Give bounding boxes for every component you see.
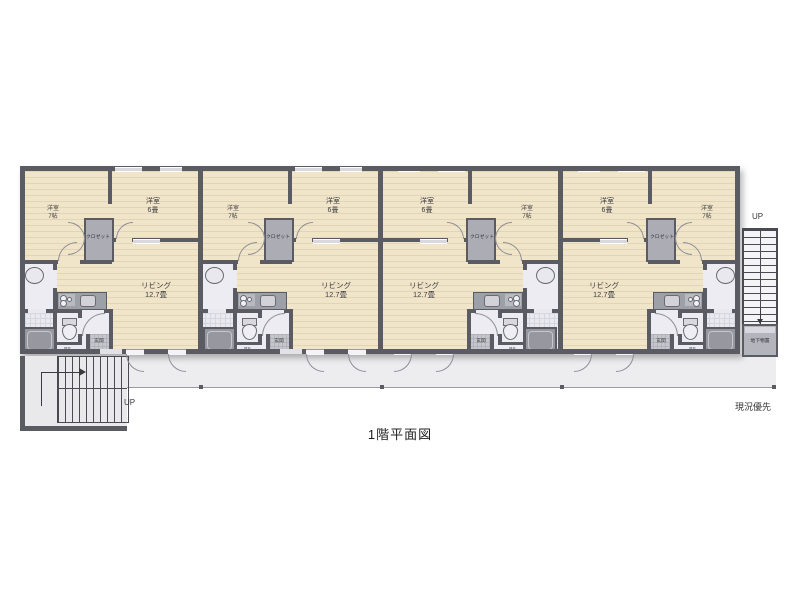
- window-top: [398, 167, 420, 172]
- wash-basin: [716, 267, 735, 284]
- stair-direction-line: [41, 372, 81, 373]
- bedroom-large-label: 洋室 6畳: [582, 198, 632, 216]
- ps-text: PS: [689, 347, 695, 352]
- kitchen-counter: [237, 292, 287, 310]
- ps-text: PS: [509, 347, 515, 352]
- apartment-unit-4: 洋室 7帖 洋室 6畳 クロゼット リビング 12.7畳 玄関 PS: [560, 166, 740, 354]
- window-top: [618, 167, 645, 172]
- room-size: 6畳: [148, 207, 159, 214]
- right-arrow-icon: [79, 368, 86, 376]
- unit-geometry: 洋室 7帖 洋室 6畳 クロゼット リビング 12.7畳 玄関 PS: [380, 166, 560, 354]
- living-label: リビング 12.7畳: [564, 281, 644, 300]
- wash-basin: [205, 267, 224, 284]
- wall-hall-living: [647, 309, 651, 354]
- bathtub-inner: [207, 331, 232, 350]
- room-size: 6畳: [422, 207, 433, 214]
- room-size: 7帖: [228, 214, 237, 220]
- room-name: リビング: [409, 281, 439, 290]
- wall-between-bedrooms: [648, 166, 652, 204]
- basement-storage-label: 地下物置: [747, 339, 773, 345]
- party-wall: [198, 166, 203, 354]
- window-top: [340, 167, 362, 172]
- window-bedroom-large: [600, 239, 627, 244]
- basement-storage: 地下物置: [742, 324, 778, 357]
- burner-icon: [693, 300, 700, 307]
- wash-basin: [536, 267, 555, 284]
- kitchen-counter: [473, 292, 523, 310]
- walkway-post: [560, 385, 564, 389]
- room-size: 6畳: [328, 207, 339, 214]
- bathtub: [23, 327, 56, 354]
- burner-icon: [508, 297, 513, 302]
- stove: [59, 294, 75, 306]
- burner-icon: [67, 297, 72, 302]
- closet-text: クロゼット: [86, 235, 110, 240]
- entrance-opening: [458, 349, 480, 354]
- room-size: 7帖: [522, 214, 531, 220]
- closet-text: クロゼット: [650, 235, 674, 240]
- closet-label: クロゼット: [469, 235, 495, 241]
- stair-treads: [57, 356, 129, 423]
- unit-geometry: 洋室 7帖 洋室 6畳 クロゼット リビング 12.7畳 玄関 PS: [200, 166, 380, 354]
- stove: [685, 294, 701, 306]
- door-opening-toilet: [498, 318, 502, 334]
- bathtub: [524, 327, 557, 354]
- room-name: 洋室: [146, 198, 160, 205]
- entrance-label: 玄関: [473, 339, 489, 345]
- burner-icon: [513, 300, 520, 307]
- entrance-opening: [100, 349, 122, 354]
- storage-hatch: [745, 327, 775, 333]
- bathtub-inner: [27, 331, 52, 350]
- apartment-unit-1: 洋室 7帖 洋室 6畳 クロゼット リビング 12.7畳 玄関 PS: [20, 166, 200, 354]
- bathtub-inner: [528, 331, 553, 350]
- room-name: リビング: [321, 281, 351, 290]
- door-opening-washroom: [53, 270, 57, 288]
- room-name: 洋室: [227, 206, 239, 212]
- ps-label: PS: [59, 347, 76, 353]
- window-top: [115, 167, 142, 172]
- bedroom-large-label: 洋室 6畳: [402, 198, 452, 216]
- up-label-left: UP: [124, 398, 135, 407]
- up-label-right: UP: [752, 212, 763, 221]
- living-label: リビング 12.7畳: [116, 281, 196, 300]
- room-name: 洋室: [701, 206, 713, 212]
- floorplan-canvas: 洋室 7帖 洋室 6畳 クロゼット リビング 12.7畳 玄関 PS: [0, 0, 800, 613]
- door-opening-washroom: [523, 270, 527, 288]
- unit-geometry: 洋室 7帖 洋室 6畳 クロゼット リビング 12.7畳 玄関 PS: [20, 166, 200, 354]
- burner-icon: [247, 297, 252, 302]
- room-name: 洋室: [521, 206, 533, 212]
- entrance-opening: [280, 349, 302, 354]
- door-opening-toilet: [258, 318, 262, 334]
- party-wall: [558, 166, 563, 354]
- wall-hall-living: [467, 309, 471, 354]
- wall-hall-living: [289, 309, 293, 354]
- room-size: 7帖: [48, 214, 57, 220]
- entrance-text: 玄関: [476, 339, 486, 344]
- bathtub: [704, 327, 737, 354]
- ps-text: PS: [244, 347, 250, 352]
- door-opening-toilet: [678, 318, 682, 334]
- window-top: [295, 167, 322, 172]
- window-bedroom-large: [420, 239, 447, 244]
- bedroom-large-label: 洋室 6畳: [128, 198, 178, 216]
- window-bedroom-large: [313, 239, 340, 244]
- living-label: リビング 12.7畳: [384, 281, 464, 300]
- walkway-post: [772, 385, 776, 389]
- bedroom-small-label: 洋室 7帖: [210, 206, 256, 221]
- door-opening-toilet: [78, 318, 82, 334]
- stove: [505, 294, 521, 306]
- door-opening-bathroom: [534, 309, 552, 313]
- wall-hall-living: [109, 309, 113, 354]
- walkway-post: [199, 385, 203, 389]
- closet-text: クロゼット: [470, 235, 494, 240]
- window-top: [160, 167, 182, 172]
- room-size: 12.7畳: [325, 290, 347, 299]
- ps-label: PS: [239, 347, 256, 353]
- room-name: リビング: [589, 281, 619, 290]
- ps-text: PS: [64, 347, 70, 352]
- window-top: [438, 167, 465, 172]
- bedroom-small-label: 洋室 7帖: [504, 206, 550, 221]
- bedroom-large-label: 洋室 6畳: [308, 198, 358, 216]
- wall-entrance-left: [266, 334, 270, 354]
- building-outline: 洋室 7帖 洋室 6畳 クロゼット リビング 12.7畳 玄関 PS: [20, 166, 740, 354]
- burner-icon: [688, 297, 693, 302]
- exterior-staircase-right: [742, 228, 778, 326]
- entrance-text: 玄関: [656, 339, 666, 344]
- party-wall: [378, 166, 383, 354]
- kitchen-sink: [664, 295, 680, 307]
- bedroom-small-label: 洋室 7帖: [30, 206, 76, 221]
- unit-geometry: 洋室 7帖 洋室 6畳 クロゼット リビング 12.7畳 玄関 PS: [560, 166, 740, 354]
- door-opening-washroom: [703, 270, 707, 288]
- apartment-unit-3: 洋室 7帖 洋室 6畳 クロゼット リビング 12.7畳 玄関 PS: [380, 166, 560, 354]
- living-label: リビング 12.7畳: [296, 281, 376, 300]
- bedroom-small-label: 洋室 7帖: [684, 206, 730, 221]
- entrance-text: 玄関: [94, 339, 104, 344]
- bathtub: [203, 327, 236, 354]
- closet-label: クロゼット: [85, 235, 111, 241]
- kitchen-counter: [653, 292, 703, 310]
- closet-label: クロゼット: [265, 235, 291, 241]
- ps-label: PS: [504, 347, 521, 353]
- door-opening-bathroom: [28, 309, 46, 313]
- room-name: 洋室: [47, 206, 59, 212]
- window-top: [578, 167, 600, 172]
- burner-icon: [60, 300, 67, 307]
- ps-label: PS: [684, 347, 701, 353]
- room-size: 6畳: [602, 207, 613, 214]
- page-title: 1階平面図: [330, 424, 470, 443]
- storage-text: 地下物置: [750, 339, 769, 344]
- wall-entrance-left: [86, 334, 90, 354]
- closet-text: クロゼット: [266, 235, 290, 240]
- wall-between-bedrooms: [468, 166, 472, 204]
- kitchen-sink: [484, 295, 500, 307]
- room-size: 12.7畳: [145, 290, 167, 299]
- bathtub-inner: [708, 331, 733, 350]
- room-name: 洋室: [600, 198, 614, 205]
- apartment-unit-2: 洋室 7帖 洋室 6畳 クロゼット リビング 12.7畳 玄関 PS: [200, 166, 380, 354]
- entrance-opening: [638, 349, 660, 354]
- entrance-label: 玄関: [653, 339, 669, 345]
- burner-icon: [240, 300, 247, 307]
- wall-ps-top: [55, 342, 82, 345]
- window-bedroom-large: [133, 239, 160, 244]
- exterior-staircase-left: [20, 356, 127, 431]
- stair-landing-line: [57, 388, 127, 389]
- kitchen-sink: [80, 295, 96, 307]
- stove: [239, 294, 255, 306]
- door-opening-bathroom: [208, 309, 226, 313]
- closet-label: クロゼット: [649, 235, 675, 241]
- room-size: 12.7畳: [593, 290, 615, 299]
- wall-between-bedrooms: [288, 166, 292, 204]
- wash-basin: [25, 267, 44, 284]
- door-opening-bathroom: [714, 309, 732, 313]
- walkway-post: [380, 385, 384, 389]
- room-size: 12.7畳: [413, 290, 435, 299]
- room-name: リビング: [141, 281, 171, 290]
- entrance-label: 玄関: [271, 339, 287, 345]
- door-opening-washroom: [233, 270, 237, 288]
- wall-entrance-left: [490, 334, 494, 354]
- entrance-label: 玄関: [91, 339, 107, 345]
- kitchen-sink: [260, 295, 276, 307]
- kitchen-counter: [57, 292, 107, 310]
- wall-ps-top: [678, 342, 705, 345]
- wall-between-bedrooms: [108, 166, 112, 204]
- room-name: 洋室: [420, 198, 434, 205]
- room-name: 洋室: [326, 198, 340, 205]
- wall-ps-top: [498, 342, 525, 345]
- wall-entrance-left: [670, 334, 674, 354]
- room-size: 7帖: [702, 214, 711, 220]
- entrance-text: 玄関: [274, 339, 284, 344]
- note-text: 現況優先: [735, 400, 795, 413]
- stair-direction-line: [41, 372, 42, 406]
- wall-ps-top: [235, 342, 262, 345]
